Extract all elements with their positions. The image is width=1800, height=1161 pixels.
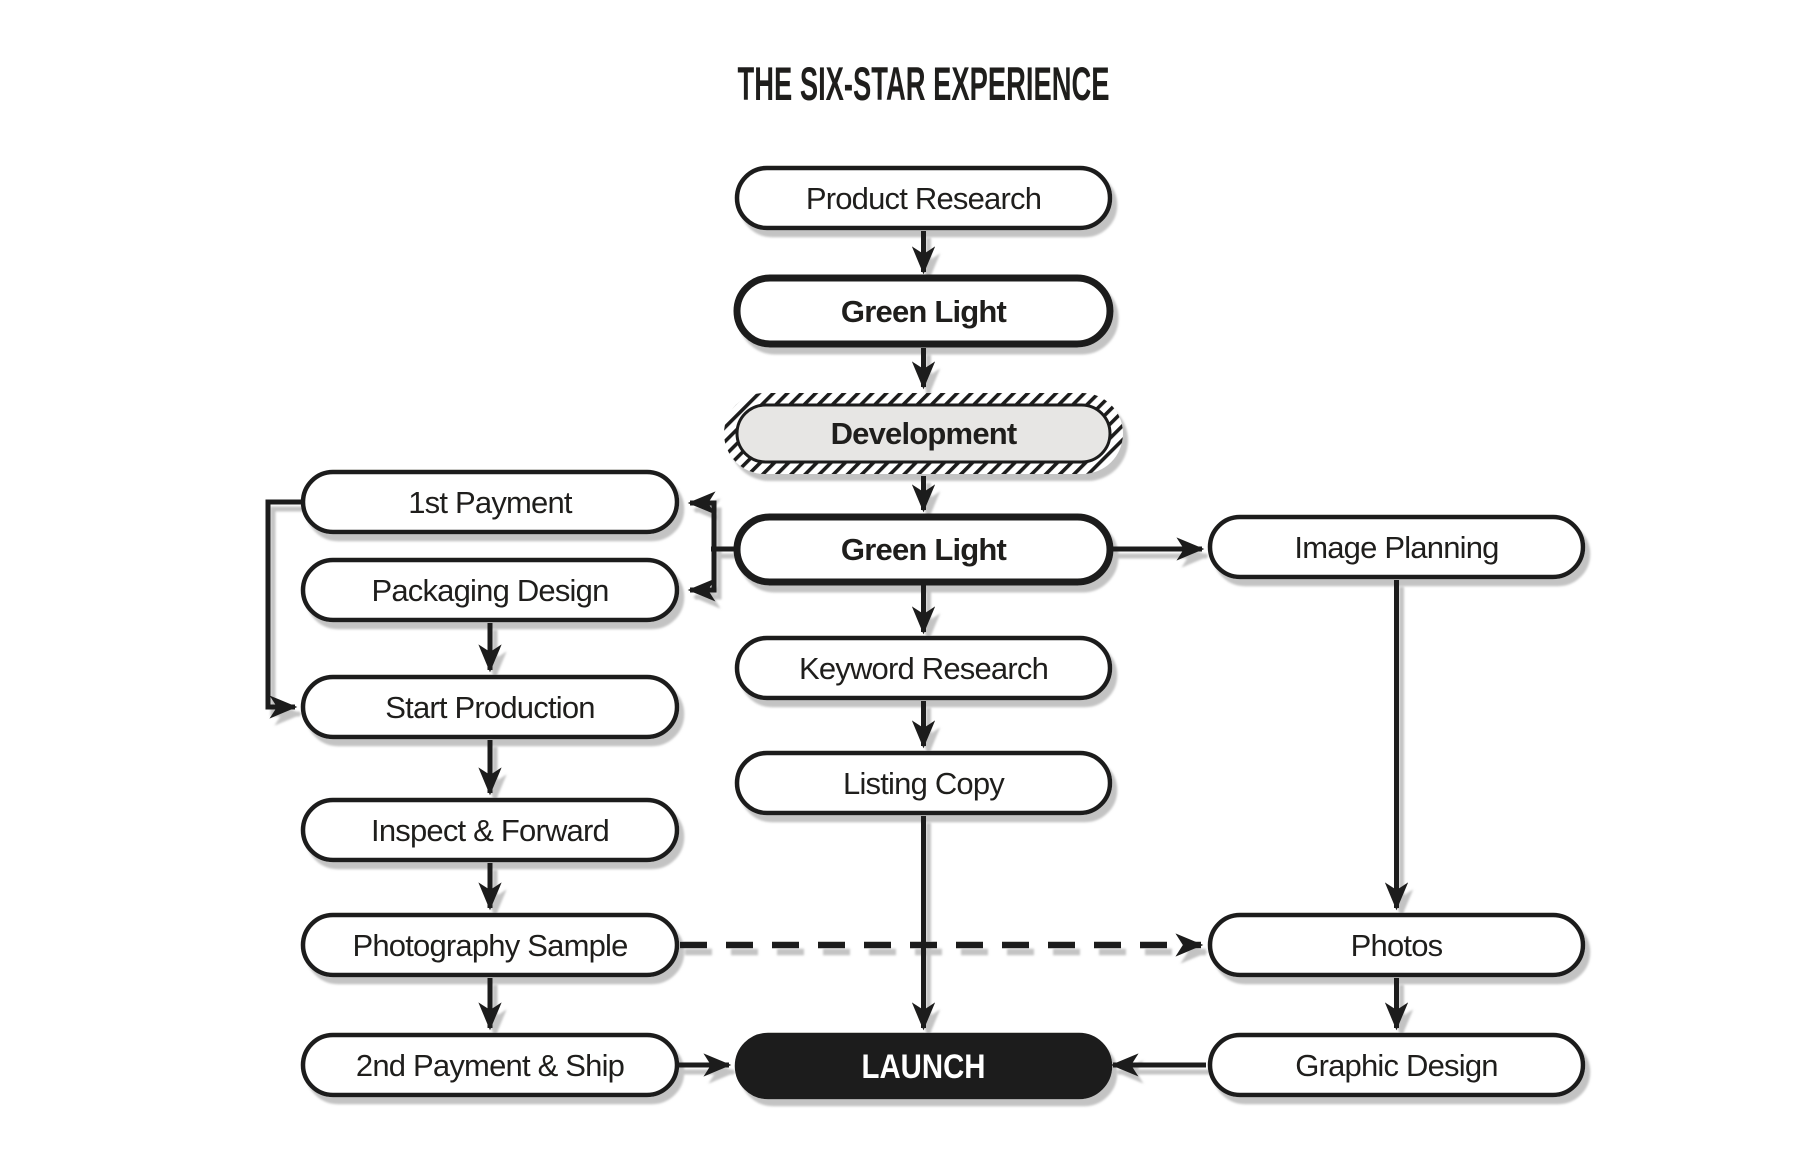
node-development-label: Development [831,416,1017,451]
node-first-payment-label: 1st Payment [408,485,573,520]
node-image-planning-label: Image Planning [1294,530,1498,565]
flowchart-canvas: THE SIX-STAR EXPERIENCE [0,0,1800,1161]
node-keyword-research-label: Keyword Research [799,651,1048,686]
node-product-research-label: Product Research [806,181,1041,216]
node-second-payment-and-ship-label: 2nd Payment & Ship [356,1048,624,1083]
node-launch-label: LAUNCH [862,1048,986,1086]
node-green-light-2-label: Green Light [841,532,1007,567]
node-inspect-and-forward-label: Inspect & Forward [371,813,609,848]
node-photography-sample-label: Photography Sample [352,928,627,963]
edge-first-payment-to-start-production [268,502,306,707]
node-start-production-label: Start Production [385,690,594,725]
flowchart-svg: THE SIX-STAR EXPERIENCE [0,0,1800,1161]
node-packaging-design-label: Packaging Design [371,573,608,608]
diagram-title: THE SIX-STAR EXPERIENCE [738,57,1110,110]
node-green-light-1-label: Green Light [841,294,1007,329]
node-graphic-design-label: Graphic Design [1295,1048,1497,1083]
node-photos-label: Photos [1351,928,1443,963]
node-listing-copy-label: Listing Copy [843,766,1005,801]
